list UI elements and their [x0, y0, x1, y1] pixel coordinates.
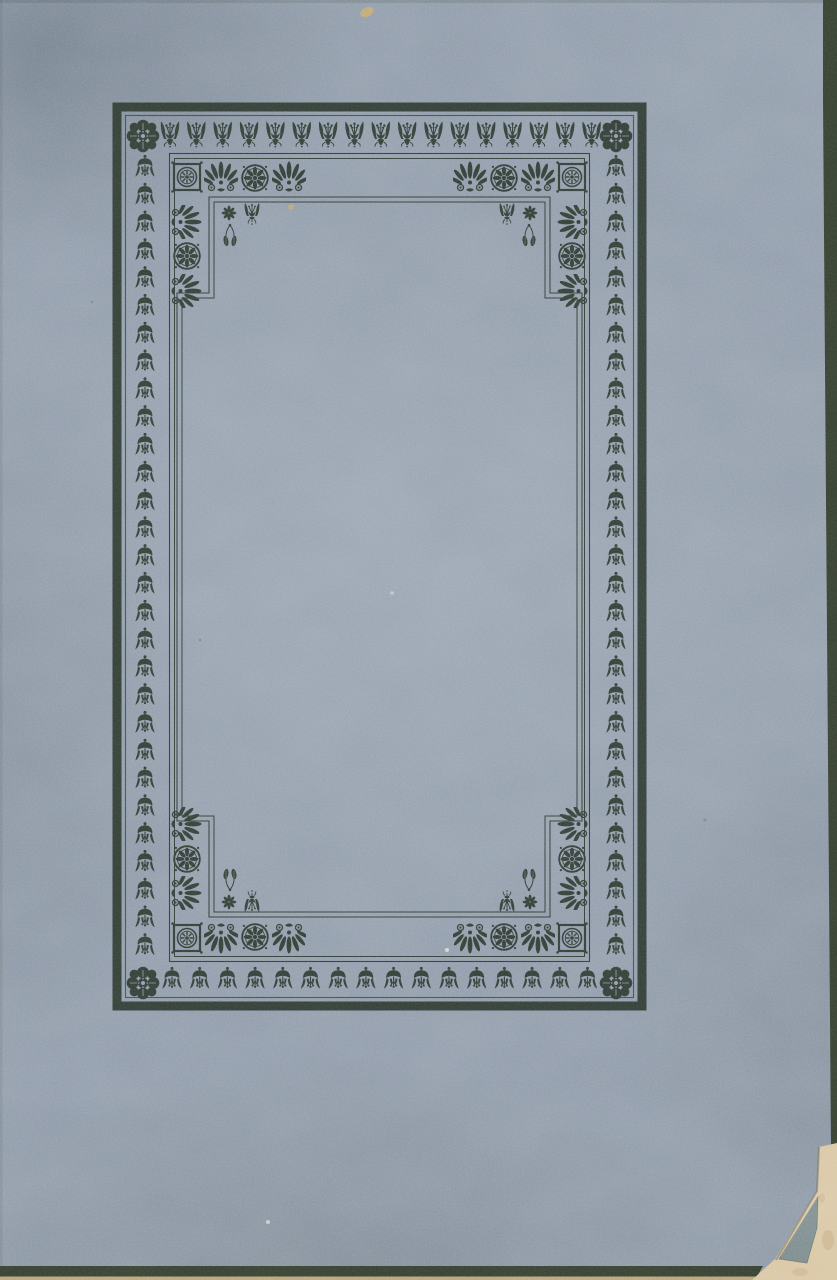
book-cover [0, 0, 837, 1280]
paper-grain-texture [0, 0, 837, 1280]
cover-scan [0, 0, 837, 1280]
